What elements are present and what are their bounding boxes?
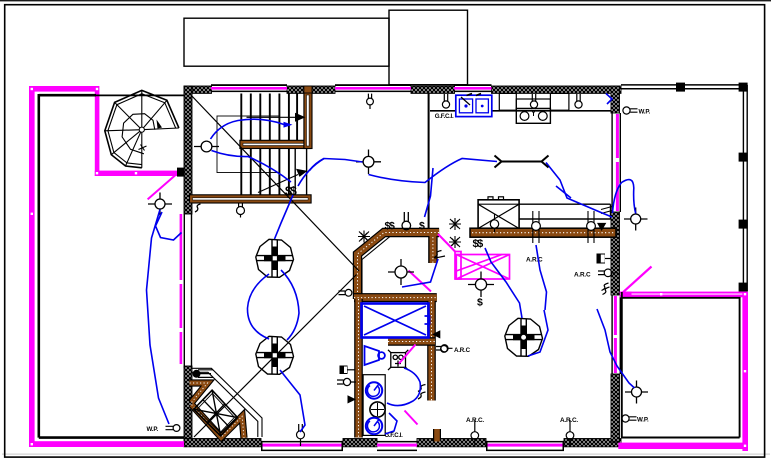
svg-text:A.R.C: A.R.C: [574, 271, 591, 278]
svg-text:A.R.C.: A.R.C.: [466, 417, 484, 424]
svg-text:$: $: [419, 220, 425, 232]
svg-text:W.P.: W.P.: [637, 417, 649, 424]
svg-text:$: $: [477, 297, 483, 309]
svg-text:$$: $$: [473, 238, 484, 250]
svg-text:A.R.C: A.R.C: [454, 347, 471, 354]
svg-text:A.R.C: A.R.C: [526, 256, 543, 263]
svg-text:W.P.: W.P.: [639, 109, 651, 116]
svg-text:$$: $$: [385, 220, 396, 232]
svg-text:W.P.: W.P.: [147, 426, 159, 433]
svg-text:G.F.C.I.: G.F.C.I.: [435, 113, 454, 120]
svg-text:A.R.C.: A.R.C.: [560, 417, 578, 424]
